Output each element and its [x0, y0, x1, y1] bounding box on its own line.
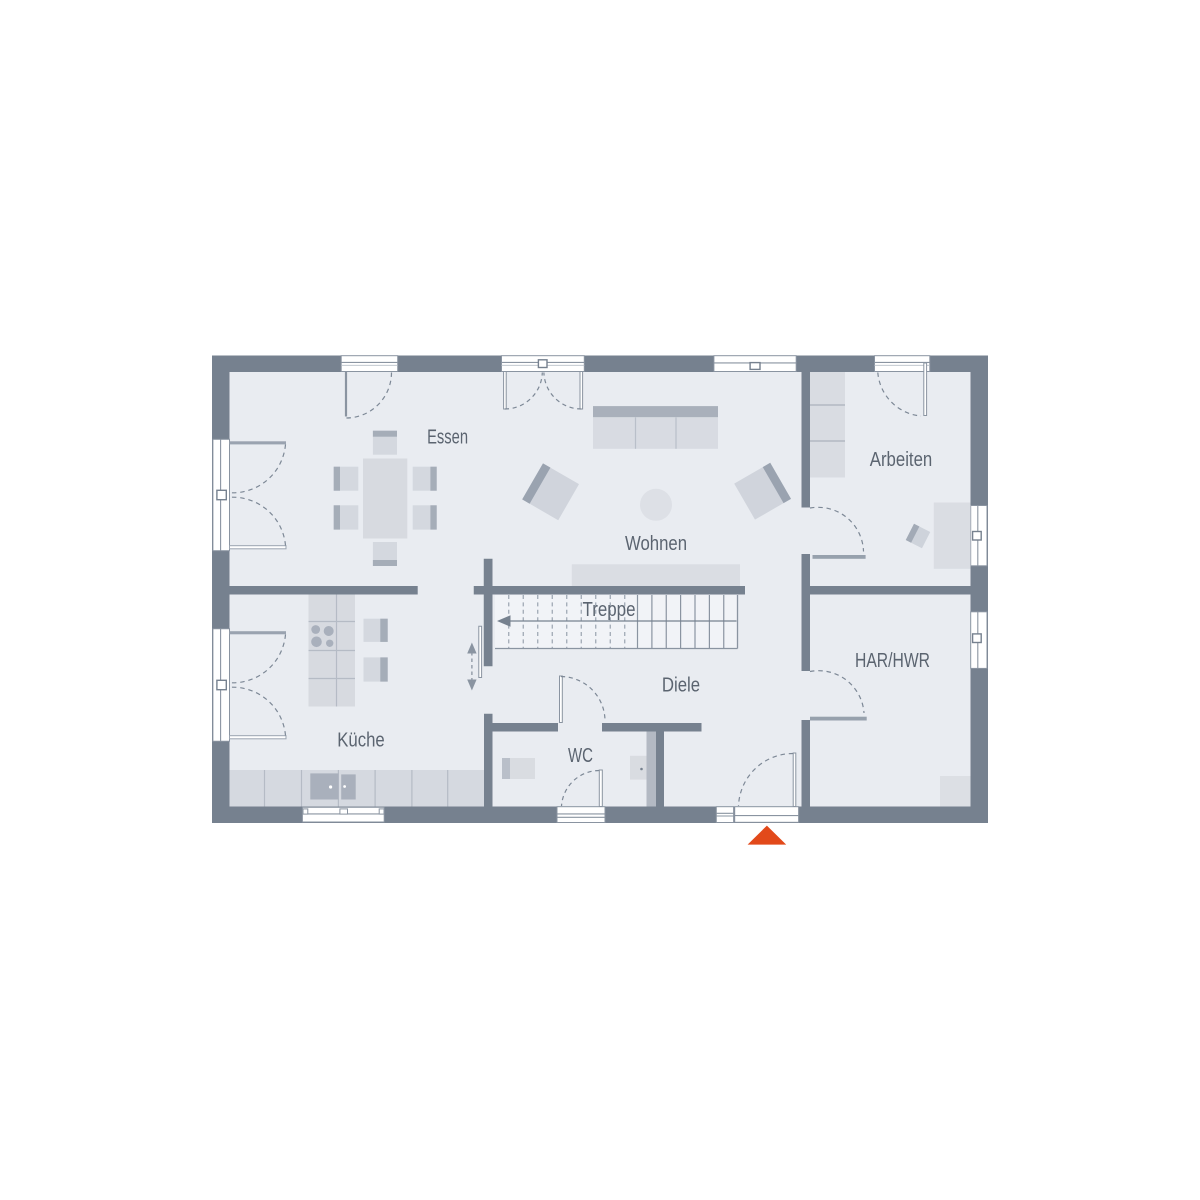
svg-text:WC: WC	[568, 745, 593, 767]
svg-text:Treppe: Treppe	[583, 599, 636, 621]
svg-text:Küche: Küche	[337, 729, 385, 751]
svg-text:HAR/HWR: HAR/HWR	[855, 650, 930, 672]
svg-text:Diele: Diele	[662, 675, 700, 697]
svg-text:Arbeiten: Arbeiten	[870, 449, 933, 471]
svg-text:Essen: Essen	[427, 427, 468, 449]
svg-text:Wohnen: Wohnen	[625, 533, 687, 555]
